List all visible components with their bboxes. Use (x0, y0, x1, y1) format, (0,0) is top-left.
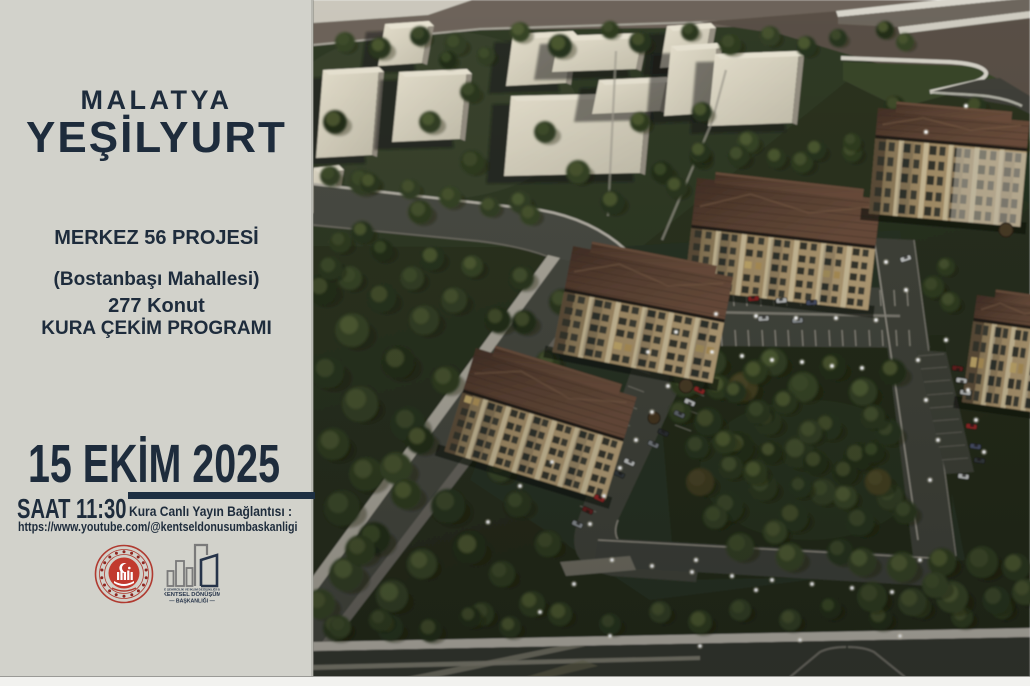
svg-text:— BAŞKANLIĞI —: — BAŞKANLIĞI — (169, 597, 215, 605)
svg-text:T.C. ÇEVRE ŞEHİRCİLİK VE İKLİM: T.C. ÇEVRE ŞEHİRCİLİK VE İKLİM DEĞİŞİKLİ… (164, 587, 220, 592)
svg-text:KENTSEL DÖNÜŞÜM: KENTSEL DÖNÜŞÜM (164, 591, 220, 598)
